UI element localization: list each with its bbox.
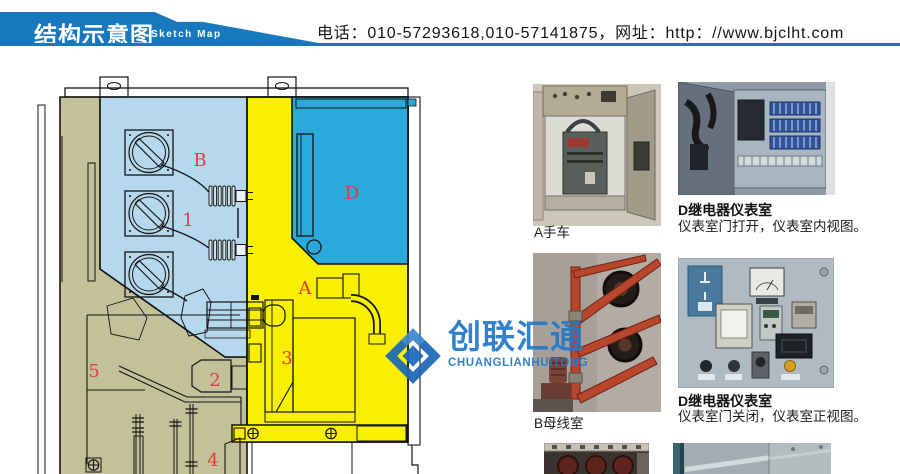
caption-photo-b: B母线室: [534, 416, 584, 432]
label-room-a: A: [298, 278, 313, 299]
company-name-cn: 创联汇通: [448, 320, 588, 355]
label-part-5: 5: [88, 361, 99, 382]
photo-d-relay-room-open: [678, 82, 835, 195]
contact-info: 电话：010-57293618,010-57141875，网址：http：//w…: [317, 19, 844, 43]
label-part-1: 1: [182, 210, 193, 231]
label-part-2: 2: [209, 370, 220, 391]
right-frame-foot: [412, 445, 418, 474]
label-room-d: D: [345, 183, 359, 204]
photo-d-relay-room-closed: [678, 258, 834, 388]
label-room-b: B: [193, 150, 206, 171]
company-name-block: 创联汇通 CHUANGLIANHUITONG: [448, 320, 588, 369]
photo-a-handcart: [533, 84, 661, 226]
caption-photo-d-closed-title: D继电器仪表室: [678, 393, 772, 409]
catalog-page: 结构示意图 Sketch Map 电话：010-57293618,010-571…: [0, 0, 900, 474]
instrument-room-region: [292, 97, 408, 264]
company-logo-icon: [383, 320, 443, 392]
label-part-4: 4: [207, 450, 218, 471]
lifting-lug-left: [100, 77, 128, 97]
caption-photo-d-closed-subtitle: 仪表室门关闭，仪表室正视图。: [678, 409, 867, 425]
lifting-lug-right: [268, 77, 296, 97]
base-frame-lines: [252, 442, 352, 474]
photo-bottom-right-partial: [673, 443, 831, 474]
photo-bottom-left-partial: [544, 443, 649, 474]
company-watermark: 创联汇通 CHUANGLIANHUITONG: [383, 320, 588, 392]
right-frame-notch: [408, 99, 416, 106]
label-part-3: 3: [281, 348, 292, 369]
section-subtitle: Sketch Map: [151, 29, 222, 40]
section-banner: 结构示意图 Sketch Map: [0, 12, 322, 45]
cabinet-left-frame: [38, 105, 45, 474]
caption-photo-d-open-subtitle: 仪表室门打开，仪表室内视图。: [678, 219, 867, 235]
caption-photo-a: A手车: [534, 225, 570, 241]
breaker-room-base-bar: [232, 425, 407, 442]
cabinet-right-frame: [408, 97, 420, 445]
header-rule: [0, 43, 900, 46]
switchgear-cutaway-diagram: B 1 D A 3 2 5 4: [35, 74, 425, 474]
company-name-en: CHUANGLIANHUITONG: [448, 357, 588, 369]
caption-photo-d-open-title: D继电器仪表室: [678, 202, 772, 218]
